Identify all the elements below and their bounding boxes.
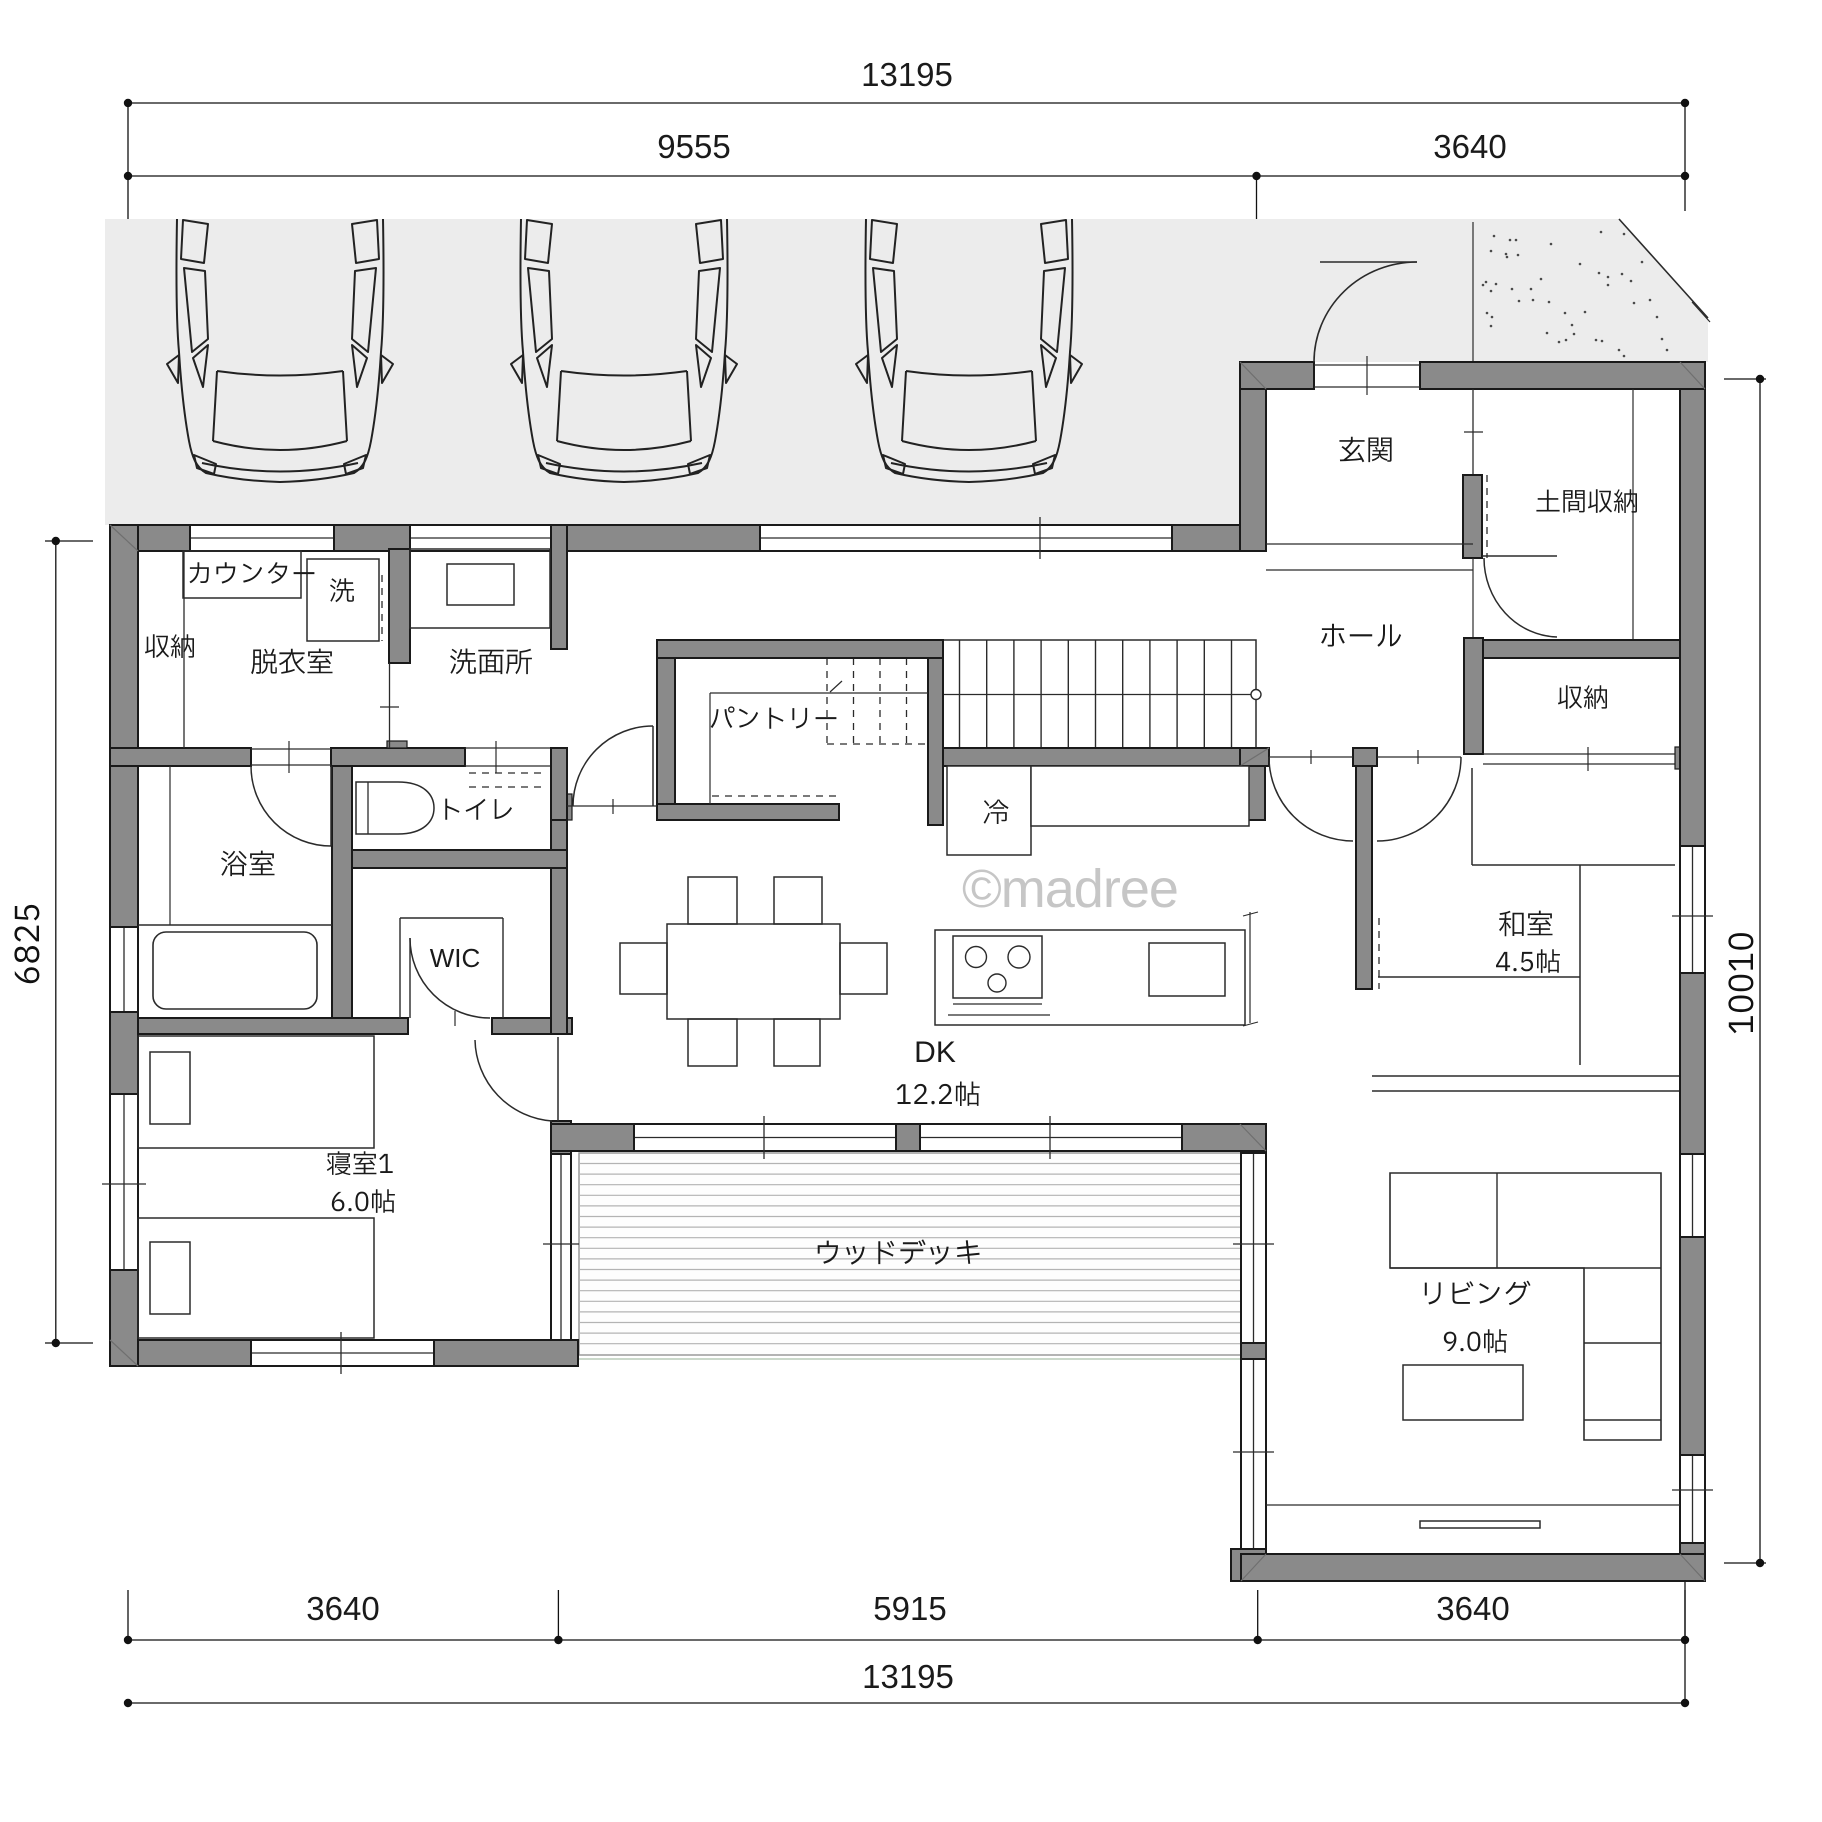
svg-text:3640: 3640 xyxy=(1433,128,1506,165)
svg-text:©madree: ©madree xyxy=(962,859,1178,919)
svg-text:13195: 13195 xyxy=(861,56,953,93)
svg-text:WIC: WIC xyxy=(430,943,481,973)
svg-text:DK: DK xyxy=(914,1036,956,1069)
svg-text:3640: 3640 xyxy=(1436,1590,1509,1627)
svg-text:9555: 9555 xyxy=(657,128,730,165)
svg-text:3640: 3640 xyxy=(306,1590,379,1627)
svg-text:5915: 5915 xyxy=(873,1590,946,1627)
svg-text:13195: 13195 xyxy=(862,1658,954,1695)
